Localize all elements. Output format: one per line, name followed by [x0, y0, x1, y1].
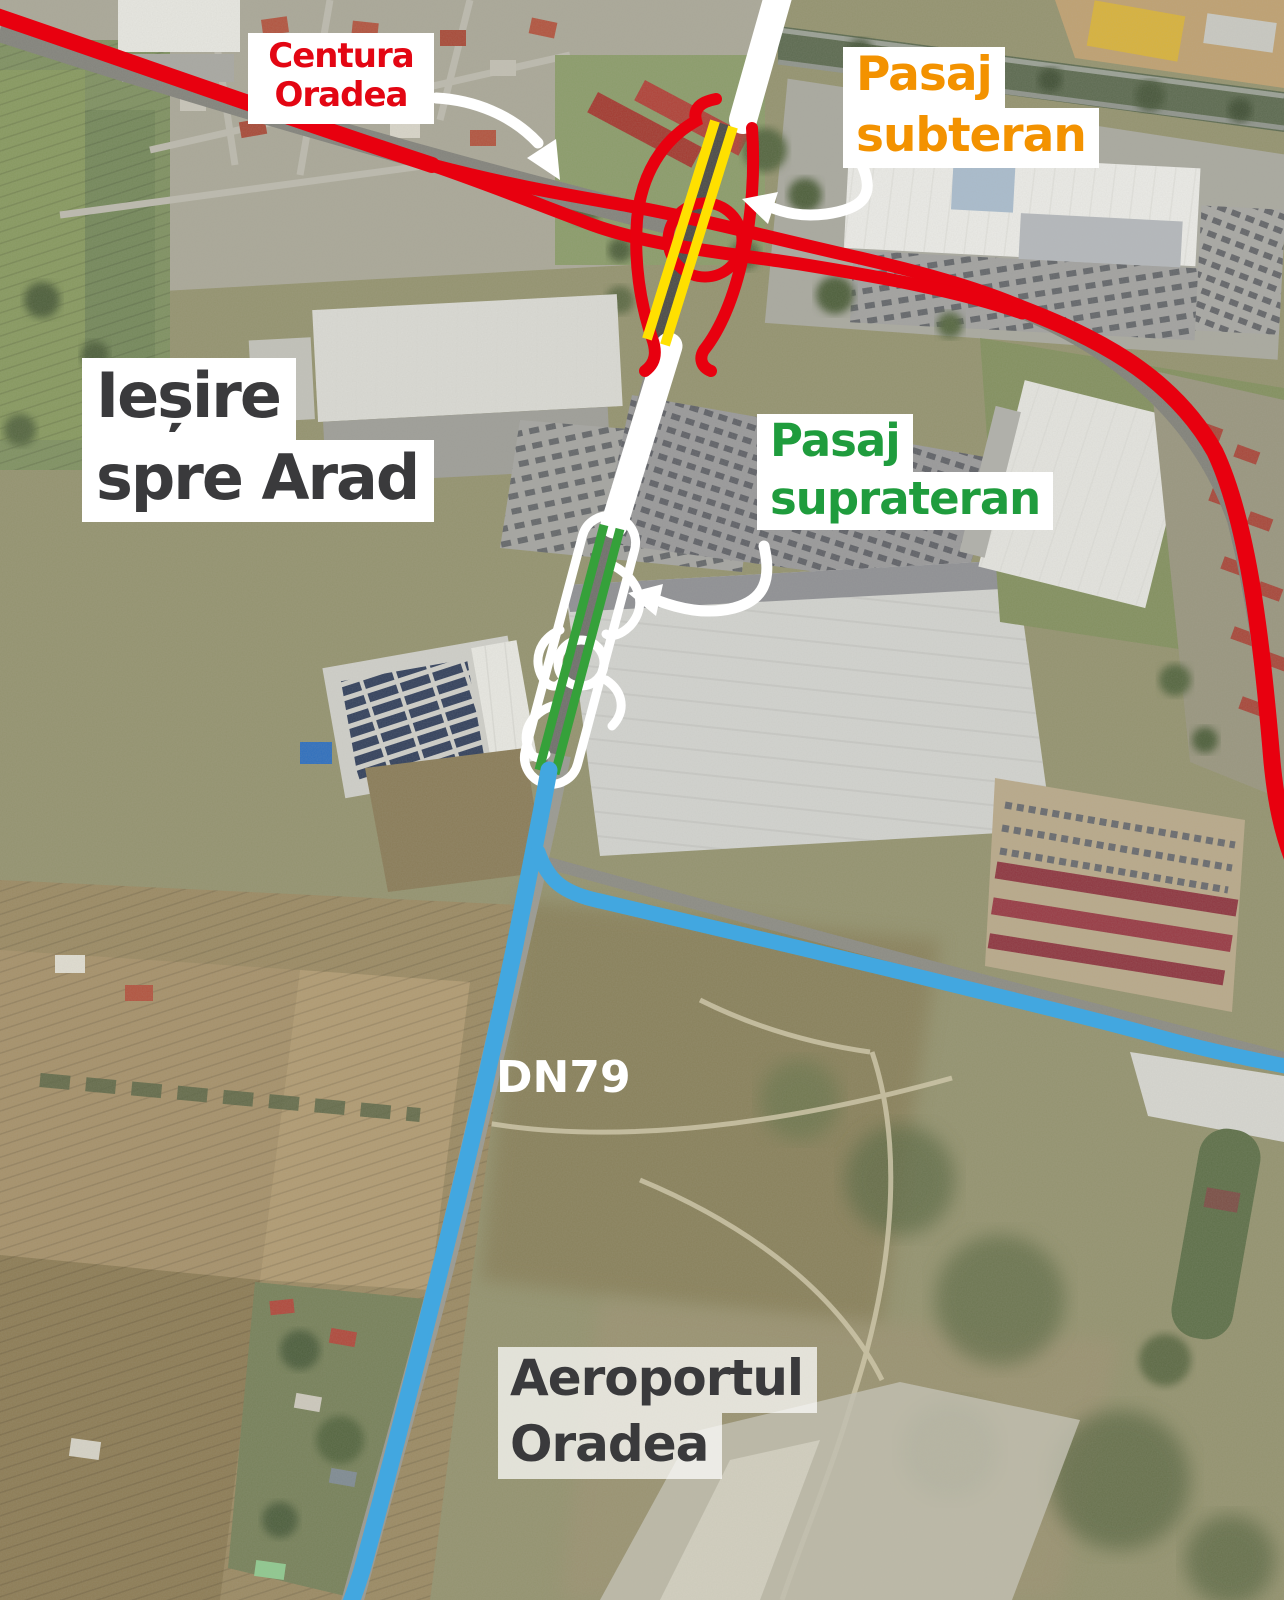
label-dn79: DN79 — [496, 1052, 631, 1103]
label-line: Centura — [268, 37, 413, 76]
label-pasaj-suprateran: Pasaj suprateran — [757, 414, 1053, 530]
label-pasaj-subteran: Pasaj subteran — [843, 47, 1099, 168]
label-line: subteran — [843, 108, 1099, 169]
label-iesire-spre-arad: Ieșire spre Arad — [82, 358, 434, 522]
label-line: Pasaj — [757, 414, 913, 472]
label-line: suprateran — [757, 472, 1053, 530]
label-line: spre Arad — [82, 440, 434, 522]
label-line: Oradea — [498, 1413, 722, 1479]
label-centura-oradea: Centura Oradea — [248, 33, 434, 124]
label-line: Pasaj — [843, 47, 1005, 108]
label-line: Ieșire — [82, 358, 296, 440]
map-annotation-graphic: Centura Oradea Pasaj subteran Ieșire spr… — [0, 0, 1284, 1600]
label-line: Aeroportul — [498, 1347, 817, 1413]
label-line: Oradea — [275, 76, 408, 115]
label-aeroportul-oradea: Aeroportul Oradea — [498, 1347, 817, 1479]
